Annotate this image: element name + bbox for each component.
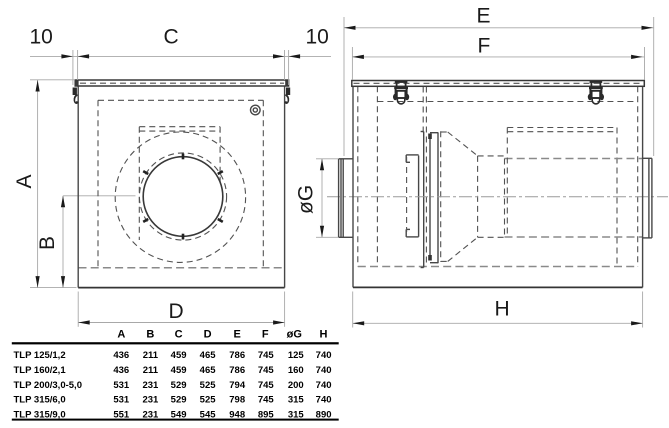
svg-text:895: 895: [258, 409, 275, 420]
svg-text:890: 890: [316, 409, 332, 420]
svg-text:125: 125: [288, 350, 305, 361]
svg-text:740: 740: [316, 350, 332, 361]
svg-text:231: 231: [142, 395, 159, 406]
svg-text:745: 745: [258, 365, 275, 376]
svg-text:740: 740: [316, 380, 332, 391]
svg-text:200: 200: [288, 380, 304, 391]
svg-text:F: F: [262, 329, 269, 341]
svg-text:551: 551: [113, 409, 130, 420]
svg-text:10: 10: [30, 26, 53, 49]
svg-text:D: D: [169, 300, 184, 323]
svg-text:465: 465: [200, 350, 217, 361]
svg-text:459: 459: [171, 350, 187, 361]
svg-text:745: 745: [258, 380, 275, 391]
svg-text:529: 529: [171, 395, 187, 406]
svg-text:C: C: [175, 329, 183, 341]
svg-text:465: 465: [200, 365, 217, 376]
svg-text:F: F: [478, 35, 491, 58]
svg-text:531: 531: [113, 380, 130, 391]
svg-text:436: 436: [113, 350, 129, 361]
svg-text:C: C: [164, 26, 179, 49]
svg-text:D: D: [204, 329, 212, 341]
svg-text:TLP 200/3,0-5,0: TLP 200/3,0-5,0: [14, 380, 82, 391]
svg-text:525: 525: [200, 380, 217, 391]
svg-text:794: 794: [229, 380, 246, 391]
svg-text:TLP 315/9,0: TLP 315/9,0: [14, 409, 66, 420]
svg-text:160: 160: [288, 365, 304, 376]
svg-text:545: 545: [200, 409, 217, 420]
svg-text:E: E: [234, 329, 241, 341]
svg-text:B: B: [36, 236, 59, 250]
svg-text:549: 549: [171, 409, 187, 420]
svg-text:436: 436: [113, 365, 129, 376]
svg-text:E: E: [477, 4, 491, 27]
svg-text:740: 740: [316, 395, 332, 406]
svg-text:A: A: [117, 329, 125, 341]
svg-text:745: 745: [258, 395, 275, 406]
svg-text:315: 315: [288, 409, 305, 420]
svg-text:øG: øG: [287, 329, 302, 341]
svg-text:10: 10: [306, 26, 329, 49]
svg-text:525: 525: [200, 395, 217, 406]
svg-text:529: 529: [171, 380, 187, 391]
svg-text:TLP 125/1,2: TLP 125/1,2: [14, 350, 66, 361]
svg-text:H: H: [495, 298, 510, 321]
svg-text:211: 211: [143, 365, 159, 376]
svg-text:798: 798: [229, 395, 245, 406]
svg-text:B: B: [146, 329, 154, 341]
svg-text:øG: øG: [295, 185, 318, 214]
svg-text:315: 315: [288, 395, 305, 406]
svg-text:231: 231: [142, 380, 159, 391]
svg-text:531: 531: [113, 395, 130, 406]
svg-text:TLP 315/6,0: TLP 315/6,0: [14, 395, 66, 406]
svg-text:786: 786: [229, 350, 245, 361]
svg-text:A: A: [13, 174, 36, 188]
svg-text:231: 231: [142, 409, 159, 420]
svg-text:H: H: [320, 329, 328, 341]
svg-text:745: 745: [258, 350, 275, 361]
svg-text:786: 786: [229, 365, 245, 376]
svg-text:740: 740: [316, 365, 332, 376]
svg-text:TLP 160/2,1: TLP 160/2,1: [14, 365, 67, 376]
svg-text:459: 459: [171, 365, 187, 376]
svg-text:211: 211: [143, 350, 159, 361]
svg-text:948: 948: [229, 409, 245, 420]
